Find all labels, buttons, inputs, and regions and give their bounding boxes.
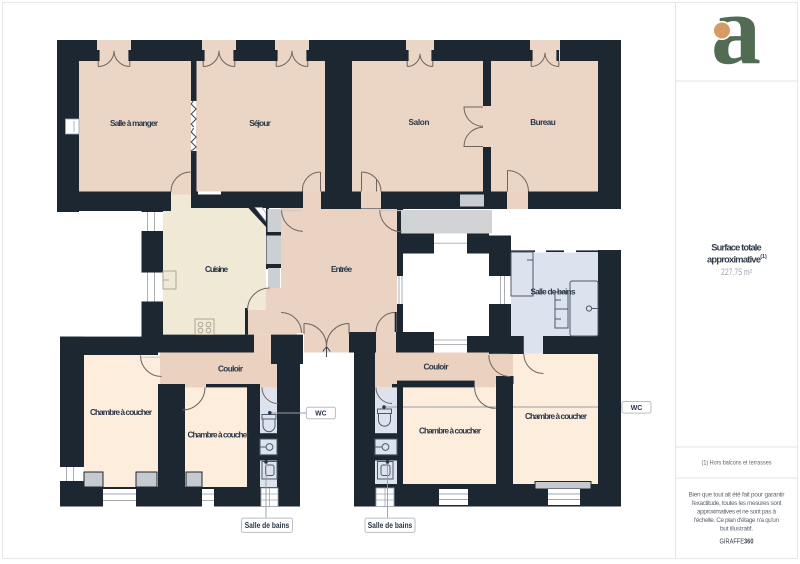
svg-text:a: a [711,0,761,86]
svg-text:Cuisine: Cuisine [205,265,228,274]
svg-text:Salle de bains: Salle de bains [245,521,290,530]
svg-text:Salon: Salon [409,118,430,127]
svg-text:(1) Hors balcons et terrasses: (1) Hors balcons et terrasses [702,460,772,467]
svg-text:WC: WC [631,403,643,412]
svg-text:Salle de bains: Salle de bains [368,521,413,530]
svg-text:Salle de bains: Salle de bains [531,288,576,297]
svg-text:Bureau: Bureau [530,118,556,127]
svg-text:Chambre à coucher: Chambre à coucher [419,427,482,436]
svg-text:Couloir: Couloir [218,364,244,373]
svg-text:l'échelle. Ce plan d'étage n'a: l'échelle. Ce plan d'étage n'a qu'un [694,517,779,524]
svg-text:Entrée: Entrée [331,265,352,274]
svg-text:Chambre à coucher: Chambre à coucher [188,431,251,440]
svg-text:Chambre à coucher: Chambre à coucher [90,408,153,417]
svg-text:GIRAFFE360: GIRAFFE360 [720,537,754,546]
svg-text:Séjour: Séjour [249,119,271,128]
svg-text:Bien que tout ait été fait pou: Bien que tout ait été fait pour garantir [689,492,786,499]
svg-text:approximative: approximative [707,255,761,265]
svg-text:227.75 m²: 227.75 m² [721,267,752,277]
svg-text:l'exactitude, toutes les mesur: l'exactitude, toutes les mesures sont [692,500,782,507]
svg-text:Salle à manger: Salle à manger [110,119,159,128]
svg-text:(1): (1) [760,254,767,260]
svg-text:but illustratif.: but illustratif. [720,526,753,533]
svg-text:Couloir: Couloir [424,362,450,371]
svg-text:WC: WC [315,409,327,418]
svg-text:Surface totale: Surface totale [711,243,761,253]
svg-text:Chambre à coucher: Chambre à coucher [525,412,588,421]
svg-text:approximatives et ne sont pas: approximatives et ne sont pas à [697,509,776,516]
